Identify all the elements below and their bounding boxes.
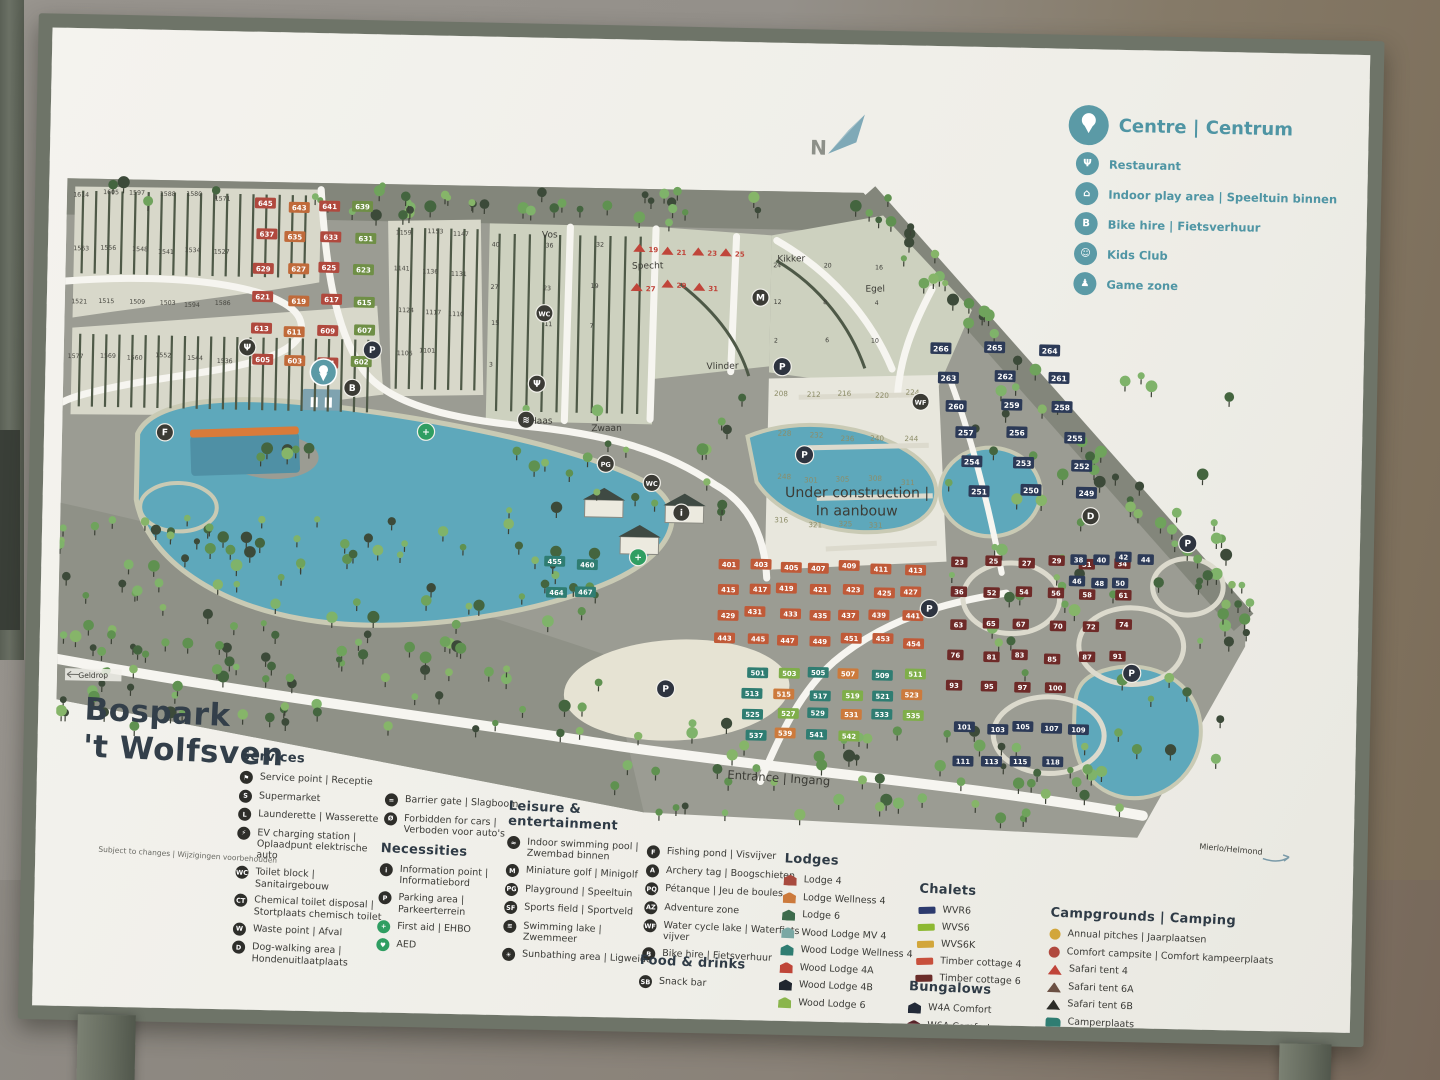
wvs6-swatch — [918, 923, 935, 930]
legend-item-label: Safari tent 6A — [1068, 981, 1134, 995]
legend-item-label: Pétanque | Jeu de boules — [665, 883, 783, 900]
legend-item-label: Lodge 4 — [803, 874, 841, 887]
legend-item: WFWater cycle lake | Waterfiets vijver — [643, 919, 804, 949]
legend-item-label: Lodge 6 — [802, 909, 840, 922]
w6a-comfort-swatch — [907, 1020, 920, 1032]
sunbathing-icon: ☀ — [502, 948, 516, 962]
legend-item-label: WVS6K — [941, 938, 976, 951]
timber-cottage-4-swatch — [916, 957, 933, 964]
legend-item-label: Indoor swimming pool | Zwembad binnen — [526, 837, 659, 866]
wood-lodge-6-swatch — [778, 997, 791, 1009]
legend-item: Wood Lodge 4A — [780, 961, 935, 980]
legend-item-label: Wood Lodge Wellness 4 — [800, 944, 913, 960]
map-sign-surface: N Centre | CentrumΨRestaurant⌂Indoor pla… — [32, 27, 1370, 1032]
wood-lodge-4a-swatch — [780, 962, 793, 974]
minigolf-icon: M — [506, 864, 520, 878]
legend-item-label: Miniature golf | Minigolf — [526, 865, 638, 881]
legend-item-label: Snack bar — [659, 976, 707, 990]
snack-bar-icon: SB — [639, 975, 653, 989]
legend-item: AZAdventure zone — [644, 901, 804, 921]
legend-item-label: Supermarket — [259, 790, 321, 804]
legend-item-label: Lodge Wellness 4 — [803, 892, 886, 907]
legend-section-title: Tiny houses — [1033, 1029, 1194, 1033]
legend-item-label: EV charging station | Oplaadpunt elektri… — [256, 827, 389, 867]
legend-section-title: Lodges — [784, 851, 940, 873]
w4a-comfort-swatch — [908, 1002, 921, 1014]
wvr6-swatch — [918, 907, 935, 914]
legend-item: MMiniature golf | Minigolf — [506, 864, 658, 884]
photo-background: N Centre | CentrumΨRestaurant⌂Indoor pla… — [0, 0, 1440, 1080]
legend-item: Wood Lodge MV 4 — [781, 926, 936, 945]
legend-item: Wood Lodge Wellness 4 — [780, 943, 935, 962]
legend-section-bungalows: BungalowsW4A ComfortW6A Comfort — [907, 979, 1049, 1033]
legend-item-label: Wood Lodge 4B — [799, 979, 873, 994]
service-point-icon: ⚑ — [240, 771, 254, 785]
legend-item: WVS6 — [918, 920, 1058, 938]
parking-icon: P — [378, 891, 392, 905]
legend-item: PQPétanque | Jeu de boules — [645, 882, 805, 902]
sports-field-icon: SF — [504, 901, 518, 915]
chemical-toilet-icon: CT — [234, 894, 248, 908]
adventure-zone-icon: AZ — [644, 901, 658, 915]
wood-lodge-mv4-swatch — [781, 927, 794, 939]
legend-item: Timber cottage 4 — [916, 954, 1056, 972]
legend-item: FFishing pond | Visvijver — [647, 845, 807, 865]
sign-leg-right — [1277, 1043, 1332, 1080]
legend-item: Lodge Wellness 4 — [783, 891, 938, 910]
legend-item-label: Safari tent 6B — [1067, 998, 1133, 1012]
legend-item-label: Sunbathing area | Ligweide — [522, 949, 652, 966]
wvs6k-swatch — [917, 940, 934, 947]
legend-area: Bospark 't Wolfsven Subject to changes |… — [32, 28, 1370, 1033]
legend-item-label: Safari tent 4 — [1069, 963, 1128, 977]
supermarket-icon: S — [239, 789, 253, 803]
legend-item-label: Chemical toilet disposal | Stortplaats c… — [253, 895, 386, 924]
aed-icon: ♥ — [376, 938, 390, 952]
legend-item: DDog-walking area | Hondenuitlaatplaats — [231, 941, 384, 971]
information-icon: i — [379, 863, 393, 877]
legend-item: ☀Sunbathing area | Ligweide — [502, 948, 654, 968]
waste-point-icon: W — [233, 922, 247, 936]
legend-item: CTChemical toilet disposal | Stortplaats… — [234, 894, 387, 924]
fishing-pond-icon: F — [647, 845, 661, 859]
lodge-6-swatch — [782, 909, 795, 921]
legend-item-label: Sports field | Sportveld — [524, 902, 633, 918]
no-cars-icon: Ø — [384, 812, 398, 826]
legend-item: WVR6 — [918, 903, 1058, 921]
legend-item: Lodge 6 — [782, 908, 937, 927]
petanque-icon: PQ — [645, 882, 659, 896]
archery-icon: A — [646, 864, 660, 878]
safari-tent-6b-swatch — [1046, 999, 1060, 1010]
legend-section-leisure: Leisure & entertainment≈Indoor swimming … — [502, 799, 661, 973]
launderette-icon: L — [238, 807, 252, 821]
barrier-gate-icon: = — [385, 793, 399, 807]
dark-fence — [0, 430, 20, 630]
swimming-lake-icon: ≋ — [503, 919, 517, 933]
legend-item-label: Swimming lake | Zwemmeer — [523, 920, 656, 949]
water-cycle-icon: WF — [643, 919, 657, 933]
legend-item-label: WVS6 — [941, 921, 969, 934]
legend-item: LLaunderette | Wasserette — [238, 807, 390, 827]
legend-item: SSupermarket — [239, 789, 391, 809]
wood-lodge-4b-swatch — [779, 979, 792, 991]
ev-charging-icon: ⚡ — [237, 826, 251, 840]
legend-item-label: Fishing pond | Visvijver — [667, 846, 777, 862]
sign-frame: N Centre | CentrumΨRestaurant⌂Indoor pla… — [18, 13, 1385, 1047]
dog-walking-icon: D — [232, 941, 246, 955]
legend-item-label: Waste point | Afval — [253, 923, 343, 938]
sign-leg-left — [75, 1014, 136, 1080]
legend-section-tiny: Tiny housesTiny House 2 — [1031, 1029, 1193, 1033]
legend-item-label: Wood Lodge 4A — [800, 962, 874, 977]
legend-item-label: Dog-walking area | Hondenuitlaatplaats — [251, 941, 384, 970]
legend-section-campgrounds: Campgrounds | CampingAnnual pitches | Ja… — [1045, 905, 1290, 1032]
toilet-block-icon: WC — [235, 866, 249, 880]
safari-tent-6a-swatch — [1047, 982, 1061, 993]
legend-item: AArchery tag | Boogschieten — [646, 864, 806, 884]
legend-item-label: First aid | EHBO — [397, 920, 471, 935]
legend-section-food: Food & drinksSBSnack bar — [638, 953, 780, 1000]
legend-section-title: Services — [240, 749, 393, 771]
legend-section-title: Campgrounds | Camping — [1050, 905, 1290, 931]
legend-item: SFSports field | Sportveld — [504, 901, 656, 921]
legend-item-label: Archery tag | Boogschieten — [666, 864, 795, 881]
playground-icon: PG — [505, 882, 519, 896]
legend-item-label: Adventure zone — [664, 901, 739, 916]
safari-tent-4-swatch — [1048, 964, 1062, 975]
legend-item-label: Wood Lodge MV 4 — [801, 927, 887, 942]
legend-section-services: Services⚑Service point | ReceptieSSuperm… — [231, 749, 393, 976]
indoor-pool-icon: ≈ — [507, 836, 521, 850]
legend-item: W4A Comfort — [908, 1001, 1048, 1019]
legend-item: SBSnack bar — [639, 975, 779, 994]
legend-item-label: AED — [396, 939, 416, 951]
lodge-4-swatch — [783, 874, 796, 886]
legend-section-title: Leisure & entertainment — [508, 799, 661, 836]
wood-lodge-wellness4-swatch — [780, 944, 793, 956]
lodge-wellness-4-swatch — [783, 892, 796, 904]
legend-item-label: WVR6 — [942, 905, 971, 918]
annual-pitch-swatch — [1049, 928, 1060, 939]
legend-item-label: Camperplaats — [1067, 1016, 1134, 1030]
legend-item-label: Timber cottage 4 — [940, 955, 1022, 970]
legend-item: WWaste point | Afval — [233, 922, 385, 942]
legend-item-label: Launderette | Wasserette — [258, 808, 379, 825]
legend-item: ⚑Service point | Receptie — [240, 771, 392, 791]
first-aid-icon: + — [377, 919, 391, 933]
legend-item-label: Annual pitches | Jaarplaatsen — [1067, 928, 1206, 946]
legend-item-label: W4A Comfort — [928, 1002, 992, 1016]
legend-item: ≈Indoor swimming pool | Zwembad binnen — [506, 836, 659, 866]
legend-item: PGPlayground | Speeltuin — [505, 882, 657, 902]
legend-item-label: Barrier gate | Slagboom — [405, 794, 519, 811]
legend-item: WVS6K — [917, 937, 1057, 955]
sign-board: N Centre | CentrumΨRestaurant⌂Indoor pla… — [18, 13, 1385, 1047]
legend-item-label: Toilet block | Sanitairgebouw — [255, 867, 388, 896]
legend-item: WCToilet block | Sanitairgebouw — [235, 866, 388, 896]
legend-item: ≋Swimming lake | Zwemmeer — [503, 919, 656, 949]
comfort-campsite-swatch — [1049, 946, 1060, 957]
legend-item: Lodge 4 — [783, 873, 938, 892]
legend-item-label: Service point | Receptie — [260, 771, 373, 788]
legend-item-label: Wood Lodge 6 — [798, 997, 866, 1011]
legend-section-title: Chalets — [919, 881, 1060, 902]
legend-item-label: Playground | Speeltuin — [525, 883, 633, 899]
legend-item: ⚡EV charging station | Oplaadpunt elektr… — [236, 826, 389, 867]
legend-item-label: Comfort campsite | Comfort kampeerplaats — [1067, 946, 1274, 967]
legend-item-label: W6A Comfort — [927, 1019, 991, 1032]
camperplaats-swatch — [1045, 1017, 1060, 1027]
legend-item: W6A Comfort — [907, 1019, 1047, 1033]
legend-section-chalets: ChaletsWVR6WVS6WVS6KTimber cottage 4Timb… — [915, 881, 1060, 994]
